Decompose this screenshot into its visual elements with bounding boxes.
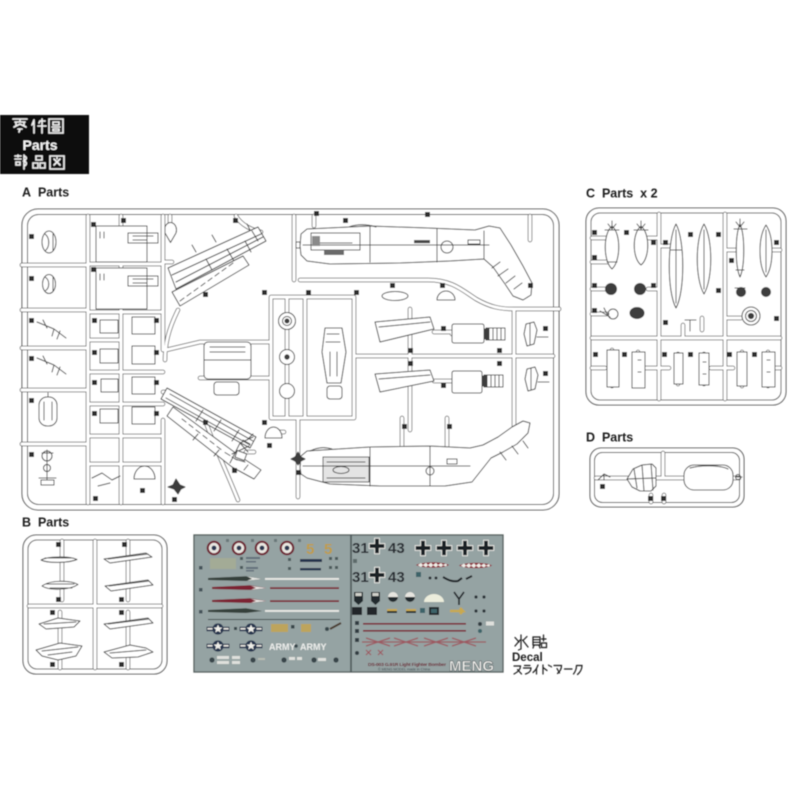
svg-text:31: 31 bbox=[352, 569, 369, 586]
svg-text:A Parts: A Parts bbox=[22, 186, 69, 200]
svg-text:ARMY: ARMY bbox=[269, 642, 296, 652]
svg-text:B Parts: B Parts bbox=[22, 516, 69, 530]
svg-text:5: 5 bbox=[306, 541, 314, 558]
svg-text:31: 31 bbox=[352, 540, 369, 557]
svg-text:MENG: MENG bbox=[449, 658, 494, 675]
svg-text:43: 43 bbox=[388, 540, 405, 557]
svg-text:Decal: Decal bbox=[512, 652, 543, 664]
svg-text:5: 5 bbox=[324, 541, 332, 558]
svg-text:D Parts: D Parts bbox=[586, 431, 633, 445]
svg-text:Parts: Parts bbox=[22, 137, 57, 153]
svg-text:C Parts x 2: C Parts x 2 bbox=[586, 187, 658, 201]
svg-text:43: 43 bbox=[388, 569, 405, 586]
svg-text:ARMY: ARMY bbox=[300, 642, 327, 652]
svg-text:© MENG MODEL made in China: © MENG MODEL made in China bbox=[378, 668, 430, 672]
